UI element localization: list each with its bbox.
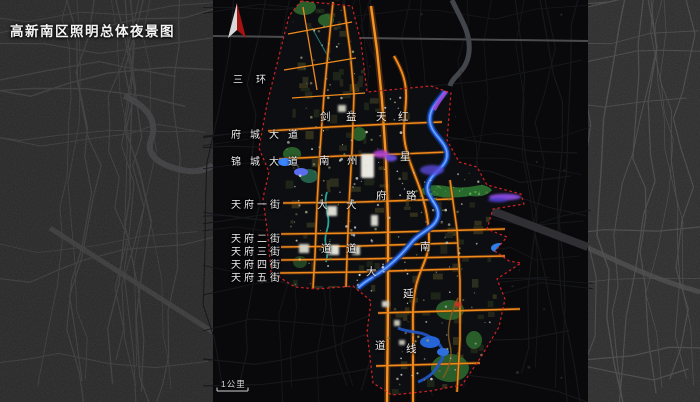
map-graphic xyxy=(0,0,700,402)
background-map-right xyxy=(578,0,700,402)
background-map-left xyxy=(0,0,216,402)
lighting-map-canvas: 高新南区照明总体夜景图 三环府城大道锦城大道天府一街天府二街天府三街天府四街天府… xyxy=(0,0,700,402)
